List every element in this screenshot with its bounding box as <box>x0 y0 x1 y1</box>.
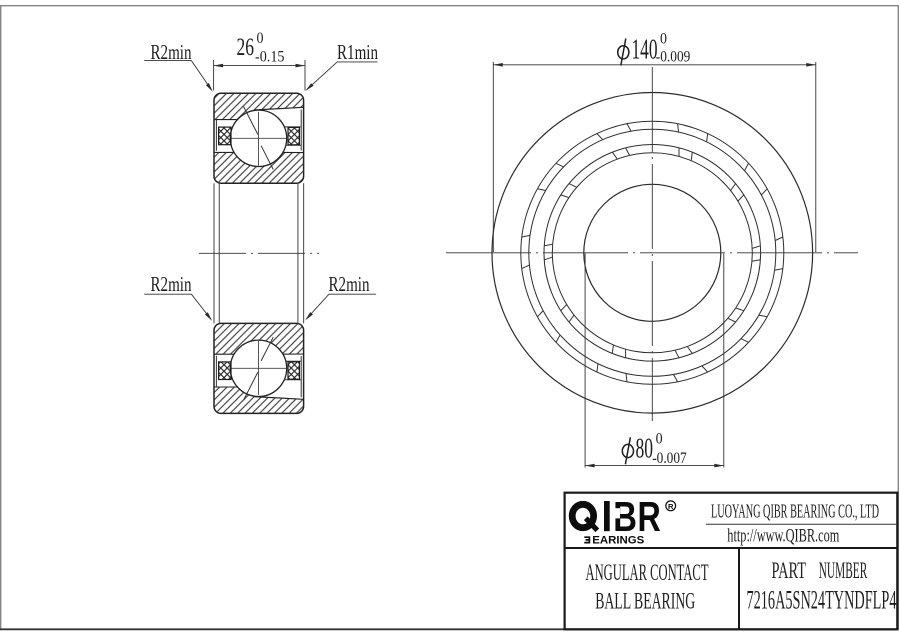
svg-text:7216A5SN24TYNDFLP4: 7216A5SN24TYNDFLP4 <box>747 586 897 615</box>
svg-text:R1min: R1min <box>337 40 378 64</box>
svg-text:R: R <box>638 493 661 540</box>
svg-text:-0.009: -0.009 <box>656 48 691 65</box>
svg-text:R: R <box>668 502 674 511</box>
svg-text:-0.15: -0.15 <box>255 49 285 66</box>
svg-text:http://www.QIBR.com: http://www.QIBR.com <box>727 526 839 547</box>
svg-text:-0.007: -0.007 <box>652 450 687 467</box>
svg-text:EARINGS: EARINGS <box>592 535 644 547</box>
svg-text:NUMBER: NUMBER <box>819 558 868 583</box>
svg-text:R2min: R2min <box>151 272 192 296</box>
svg-text:R2min: R2min <box>329 272 370 296</box>
svg-text:0: 0 <box>656 430 663 447</box>
svg-text:0: 0 <box>257 30 264 47</box>
svg-text:ANGULAR CONTACT: ANGULAR CONTACT <box>586 560 709 585</box>
svg-text:LUOYANG QIBR BEARING CO., LTD: LUOYANG QIBR BEARING CO., LTD <box>711 501 879 523</box>
svg-text:BALL BEARING: BALL BEARING <box>595 589 695 614</box>
svg-text:26: 26 <box>237 34 255 61</box>
svg-text:80: 80 <box>636 433 654 464</box>
svg-text:PART: PART <box>772 558 807 583</box>
svg-text:0: 0 <box>660 31 667 48</box>
svg-text:140: 140 <box>632 35 658 66</box>
